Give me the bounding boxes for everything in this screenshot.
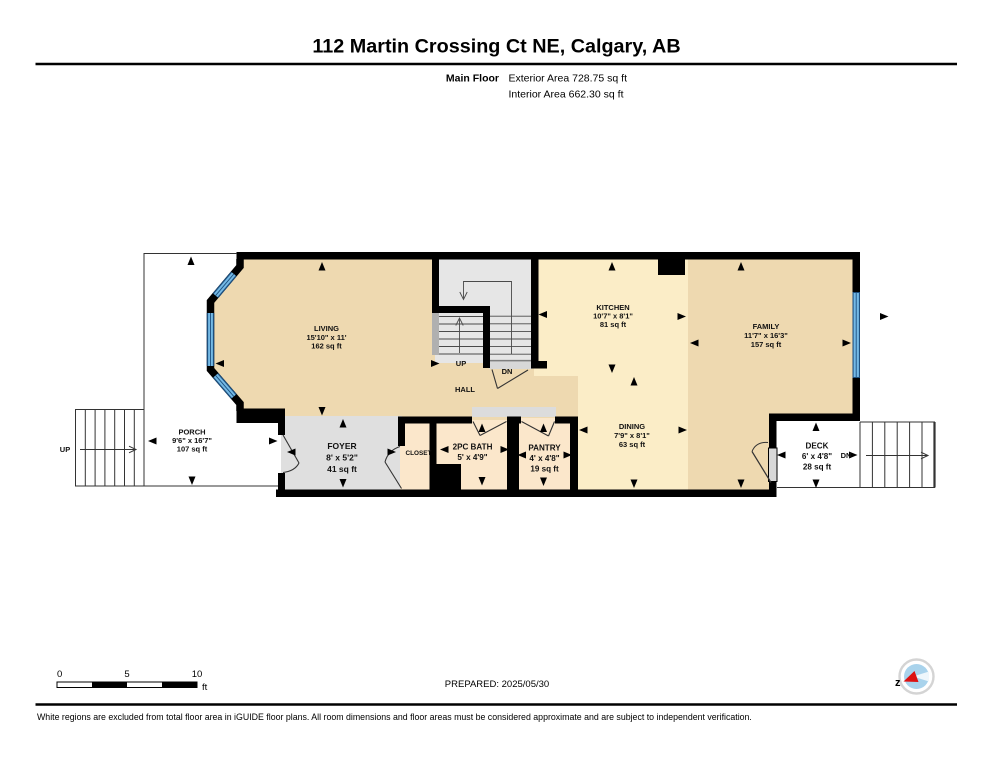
svg-text:11'7" x 16'3": 11'7" x 16'3" xyxy=(744,331,788,340)
svg-text:z: z xyxy=(895,677,901,689)
svg-text:Interior Area 662.30 sq ft: Interior Area 662.30 sq ft xyxy=(509,89,624,101)
svg-text:107 sq ft: 107 sq ft xyxy=(177,445,208,454)
svg-text:6' x 4'8": 6' x 4'8" xyxy=(802,452,832,461)
svg-text:162 sq ft: 162 sq ft xyxy=(311,342,342,351)
svg-text:4' x 4'8": 4' x 4'8" xyxy=(529,454,559,463)
svg-text:White regions are excluded fro: White regions are excluded from total fl… xyxy=(37,712,752,722)
svg-text:0: 0 xyxy=(57,669,62,680)
svg-text:UP: UP xyxy=(60,445,70,454)
svg-text:8' x 5'2": 8' x 5'2" xyxy=(326,453,358,463)
svg-text:DECK: DECK xyxy=(806,442,829,451)
svg-text:7'9" x 8'1": 7'9" x 8'1" xyxy=(614,431,650,440)
svg-text:81 sq ft: 81 sq ft xyxy=(600,320,627,329)
svg-text:112 Martin Crossing Ct NE, Cal: 112 Martin Crossing Ct NE, Calgary, AB xyxy=(312,36,680,58)
svg-text:CLOSET: CLOSET xyxy=(406,450,432,457)
svg-text:2PC BATH: 2PC BATH xyxy=(453,443,493,452)
svg-text:19 sq ft: 19 sq ft xyxy=(530,465,559,474)
svg-text:PANTRY: PANTRY xyxy=(528,444,561,453)
svg-text:5: 5 xyxy=(124,669,129,680)
svg-text:5' x 4'9": 5' x 4'9" xyxy=(457,453,487,462)
svg-text:FOYER: FOYER xyxy=(327,441,356,451)
svg-text:DINING: DINING xyxy=(619,422,645,431)
svg-text:DN: DN xyxy=(841,451,852,460)
svg-text:Exterior Area 728.75 sq ft: Exterior Area 728.75 sq ft xyxy=(509,73,628,85)
svg-text:PREPARED: 2025/05/30: PREPARED: 2025/05/30 xyxy=(445,679,549,690)
svg-text:28 sq ft: 28 sq ft xyxy=(803,463,832,472)
svg-text:FAMILY: FAMILY xyxy=(753,322,780,331)
svg-text:41 sq ft: 41 sq ft xyxy=(327,464,357,474)
svg-text:63 sq ft: 63 sq ft xyxy=(619,440,646,449)
svg-text:DN: DN xyxy=(502,367,513,376)
svg-text:10: 10 xyxy=(192,669,203,680)
svg-text:Main Floor: Main Floor xyxy=(446,73,499,85)
svg-text:157 sq ft: 157 sq ft xyxy=(751,340,782,349)
svg-text:UP: UP xyxy=(456,359,466,368)
svg-text:HALL: HALL xyxy=(455,385,475,394)
svg-text:ft: ft xyxy=(202,682,208,693)
svg-text:LIVING: LIVING xyxy=(314,324,339,333)
